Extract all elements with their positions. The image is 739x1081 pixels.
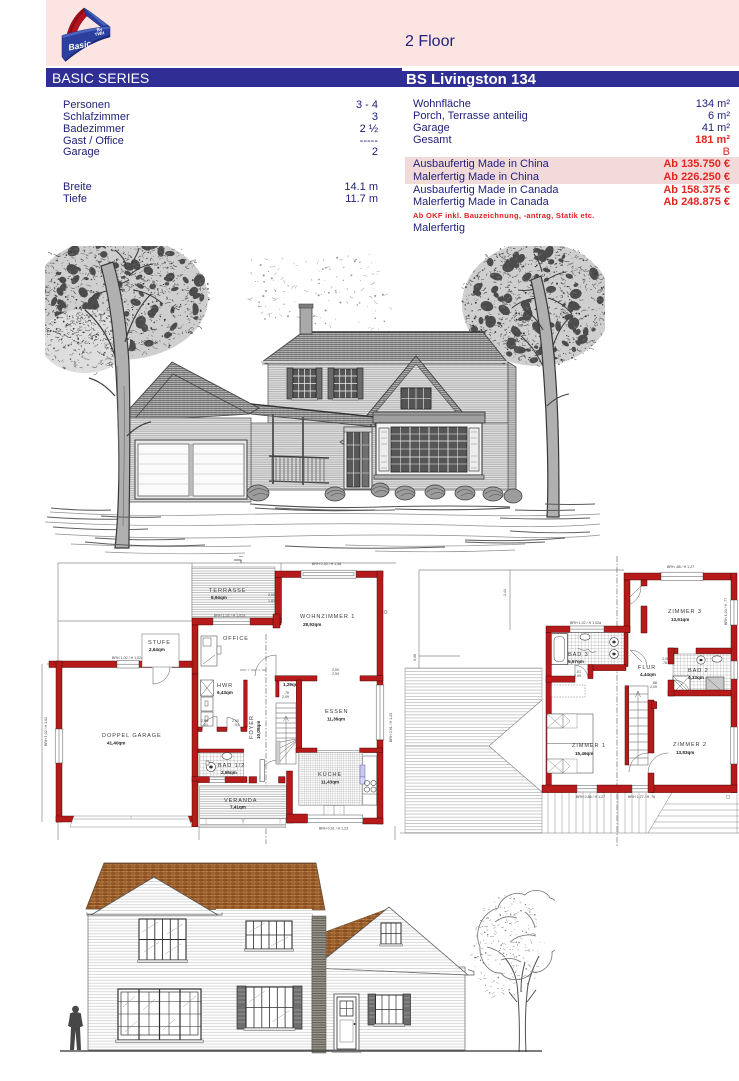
svg-text:2,09: 2,09 xyxy=(650,685,657,689)
svg-text:BRH 0,91 / H 1,23: BRH 0,91 / H 1,23 xyxy=(389,713,393,742)
svg-text:8,94qm: 8,94qm xyxy=(211,595,227,600)
svg-text:TERRASSE: TERRASSE xyxy=(209,588,246,594)
svg-text:KÜCHE: KÜCHE xyxy=(318,771,342,778)
svg-text:BRH 0,35 / H 1,58: BRH 0,35 / H 1,58 xyxy=(312,562,341,566)
svg-text:2,44: 2,44 xyxy=(503,589,507,596)
svg-text:1,83: 1,83 xyxy=(268,599,275,603)
svg-text:5,57qm: 5,57qm xyxy=(568,659,584,664)
svg-text:ZIMMER 2: ZIMMER 2 xyxy=(673,742,707,748)
svg-text:13,83qm: 13,83qm xyxy=(676,750,694,755)
svg-text:4,44qm: 4,44qm xyxy=(640,672,656,677)
svg-text:ZIMMER 3: ZIMMER 3 xyxy=(668,609,702,615)
svg-text:11,36qm: 11,36qm xyxy=(327,717,345,722)
svg-text:11,43qm: 11,43qm xyxy=(321,780,339,785)
svg-text:BAD 2: BAD 2 xyxy=(688,668,709,674)
svg-text:FOYER: FOYER xyxy=(249,715,255,739)
svg-text:BAD 3: BAD 3 xyxy=(568,652,589,658)
svg-text:BRH 1,27 / H ,76: BRH 1,27 / H ,76 xyxy=(628,795,655,799)
svg-text:BRH 1,02 / H 1,02: BRH 1,02 / H 1,02 xyxy=(44,717,48,746)
svg-text:BRH 1,02 / H 1,02a: BRH 1,02 / H 1,02a xyxy=(570,621,601,625)
svg-text:9,06: 9,06 xyxy=(413,654,417,661)
svg-text:VERANDA: VERANDA xyxy=(224,798,257,804)
svg-text:BRH 0,86 / H 1,27: BRH 0,86 / H 1,27 xyxy=(576,795,605,799)
svg-text:2,09: 2,09 xyxy=(282,695,289,699)
svg-text:BRH 1,02 / H 1,02a: BRH 1,02 / H 1,02a xyxy=(214,614,245,618)
svg-text:BRH 0,91 / H 1,23: BRH 0,91 / H 1,23 xyxy=(319,827,348,831)
svg-text:OFFICE: OFFICE xyxy=(223,636,249,642)
svg-text:2,09: 2,09 xyxy=(268,593,275,597)
svg-text:WOHNZIMMER 1: WOHNZIMMER 1 xyxy=(300,614,355,620)
svg-text:4,33qm: 4,33qm xyxy=(688,675,704,680)
svg-text:ESSEN: ESSEN xyxy=(325,709,348,715)
svg-text:10,08qm: 10,08qm xyxy=(256,721,261,739)
svg-text:.01: .01 xyxy=(234,723,239,727)
svg-text:.76: .76 xyxy=(662,661,667,665)
svg-text:.01: .01 xyxy=(203,723,208,727)
svg-text:BAD 1/2: BAD 1/2 xyxy=(218,763,245,769)
svg-text:2,09: 2,09 xyxy=(574,674,581,678)
svg-text:2,09: 2,09 xyxy=(332,672,339,676)
svg-text:HWR: HWR xyxy=(217,683,233,689)
svg-text:6,43qm: 6,43qm xyxy=(217,690,233,695)
svg-text:BRH ,88 / H 1,27: BRH ,88 / H 1,27 xyxy=(667,565,694,569)
svg-text:STUFE: STUFE xyxy=(148,640,171,646)
svg-text:BRH 1,02 / H 1,02a: BRH 1,02 / H 1,02a xyxy=(112,656,143,660)
svg-text:28,92qm: 28,92qm xyxy=(303,622,321,627)
svg-text:15,46qm: 15,46qm xyxy=(575,751,593,756)
svg-text:DOPPEL GARAGE: DOPPEL GARAGE xyxy=(102,733,162,739)
svg-text:41,40qm: 41,40qm xyxy=(107,741,125,746)
svg-text:ZIMMER 1: ZIMMER 1 xyxy=(572,743,606,749)
svg-text:2,64qm: 2,64qm xyxy=(149,647,165,652)
svg-text:7,41qm: 7,41qm xyxy=(230,805,246,810)
svg-text:13,61qm: 13,61qm xyxy=(671,617,689,622)
svg-text:BRH 1,23 / H ,77: BRH 1,23 / H ,77 xyxy=(724,598,728,625)
svg-text:2,65qm: 2,65qm xyxy=(221,770,237,775)
